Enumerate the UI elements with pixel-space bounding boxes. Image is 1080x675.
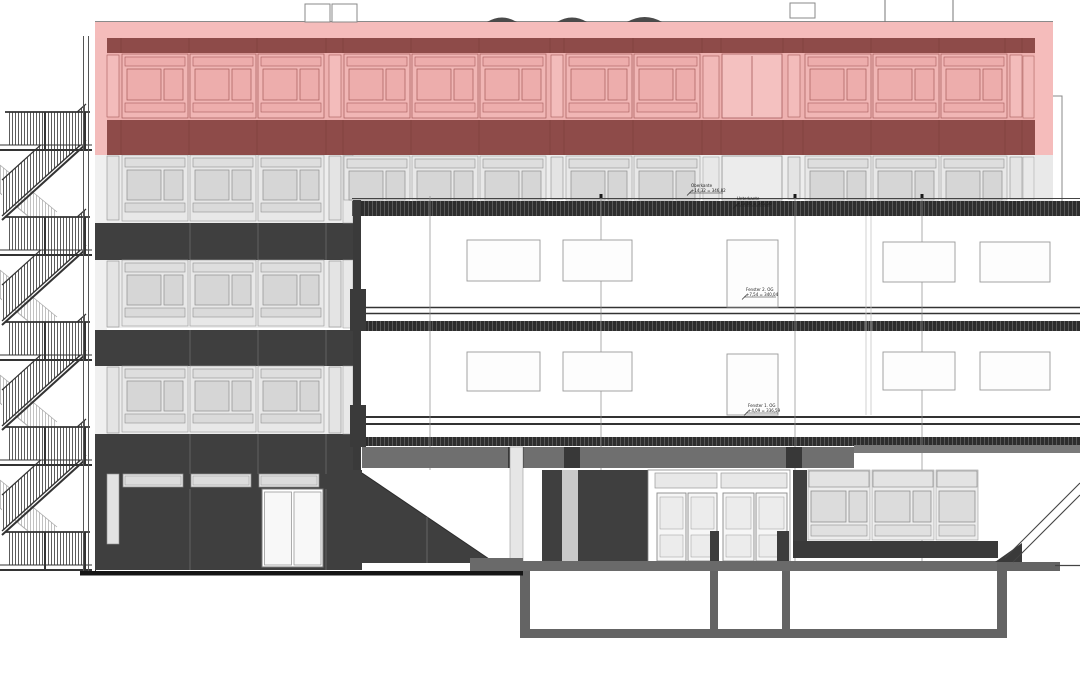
right-ramp <box>995 483 1080 562</box>
svg-text:+4,09 = 336,59: +4,09 = 336,59 <box>748 408 781 413</box>
basement-wall <box>520 571 530 629</box>
architectural-drawing-canvas: Oberkante +14,32 = 346,82 Unterkante +13… <box>0 0 1080 675</box>
floor-slab <box>352 201 1080 216</box>
window-module <box>808 470 870 540</box>
basement-floor-slab <box>520 629 1007 638</box>
window-sill-base <box>793 541 998 558</box>
window-band-level3 <box>107 260 362 328</box>
vent-panel <box>107 367 119 433</box>
window-band-level2 <box>107 366 362 434</box>
vent-panel <box>107 474 119 544</box>
window-module <box>258 155 324 221</box>
railing-post <box>710 531 719 565</box>
maroon-band-lower <box>95 120 1035 155</box>
window-band-level4-left <box>107 155 362 223</box>
window-module <box>122 366 188 432</box>
window-module <box>873 156 939 200</box>
spandrel-band <box>95 330 362 366</box>
svg-text:+14,32 = 346,82: +14,32 = 346,82 <box>691 188 726 193</box>
window-module <box>344 156 410 200</box>
basement-wall <box>782 571 790 629</box>
roof-hatch <box>305 4 330 22</box>
window-module <box>941 156 1007 200</box>
roof-dome-vent <box>557 18 587 23</box>
clerestory-window <box>191 474 251 487</box>
window-module <box>122 155 188 221</box>
highlighted-top-floor <box>95 22 1053 156</box>
entrance-doors <box>648 470 790 565</box>
roof-hatch <box>790 3 815 18</box>
building-section-drawing: Oberkante +14,32 = 346,82 Unterkante +13… <box>0 0 1080 675</box>
basement-wall <box>997 562 1007 638</box>
spandrel-band <box>95 434 362 474</box>
window-module <box>122 260 188 326</box>
window-module <box>258 366 324 432</box>
ground-slab <box>520 561 1007 571</box>
window-module <box>190 155 256 221</box>
ground-line <box>80 571 523 576</box>
svg-text:+13,06 = 345,56: +13,06 = 345,56 <box>737 201 772 206</box>
svg-text:+7,54 = 340,04: +7,54 = 340,04 <box>746 292 779 297</box>
railing-post <box>777 531 789 565</box>
roof-fascia <box>95 22 1053 38</box>
window-module <box>480 156 546 200</box>
vent-panel <box>329 367 341 433</box>
floor-slab <box>352 321 1080 331</box>
vent-panel <box>1010 157 1022 199</box>
ceiling-beam <box>362 447 854 468</box>
window-module <box>190 260 256 326</box>
ground-window-band-right <box>793 470 998 558</box>
basement-ledge <box>997 562 1060 571</box>
window-module <box>566 156 632 200</box>
window-module <box>412 156 478 200</box>
vent-panel <box>107 156 119 220</box>
clerestory-window <box>123 474 183 487</box>
downpipe-line <box>1053 96 1062 205</box>
vent-panel <box>107 261 119 327</box>
spandrel-band <box>95 223 362 260</box>
window-module <box>872 470 934 540</box>
window-module <box>258 260 324 326</box>
roof-dome-vent <box>627 17 662 22</box>
wall-pier <box>542 470 652 563</box>
column <box>510 447 523 563</box>
floor-slab <box>352 437 1080 446</box>
vent-panel <box>551 157 563 199</box>
window-module <box>190 366 256 432</box>
maroon-band-upper <box>95 38 1035 53</box>
corner-return-highlight <box>1035 38 1053 155</box>
window-module <box>805 156 871 200</box>
basement-wall <box>710 571 718 629</box>
window-module <box>634 156 700 200</box>
window-band-level4-right <box>344 155 1053 205</box>
exterior-step <box>470 558 523 571</box>
clerestory-window <box>259 474 319 487</box>
fire-escape-stair <box>0 36 92 574</box>
roof-dome-vent <box>487 18 517 23</box>
roof-hatch <box>332 4 357 22</box>
stair-core-panel <box>722 156 782 200</box>
vent-panel <box>788 157 800 199</box>
vent-panel <box>329 156 341 220</box>
pink-window-modules <box>107 54 1034 118</box>
vent-panel <box>329 261 341 327</box>
ground-floor-door <box>262 489 323 567</box>
